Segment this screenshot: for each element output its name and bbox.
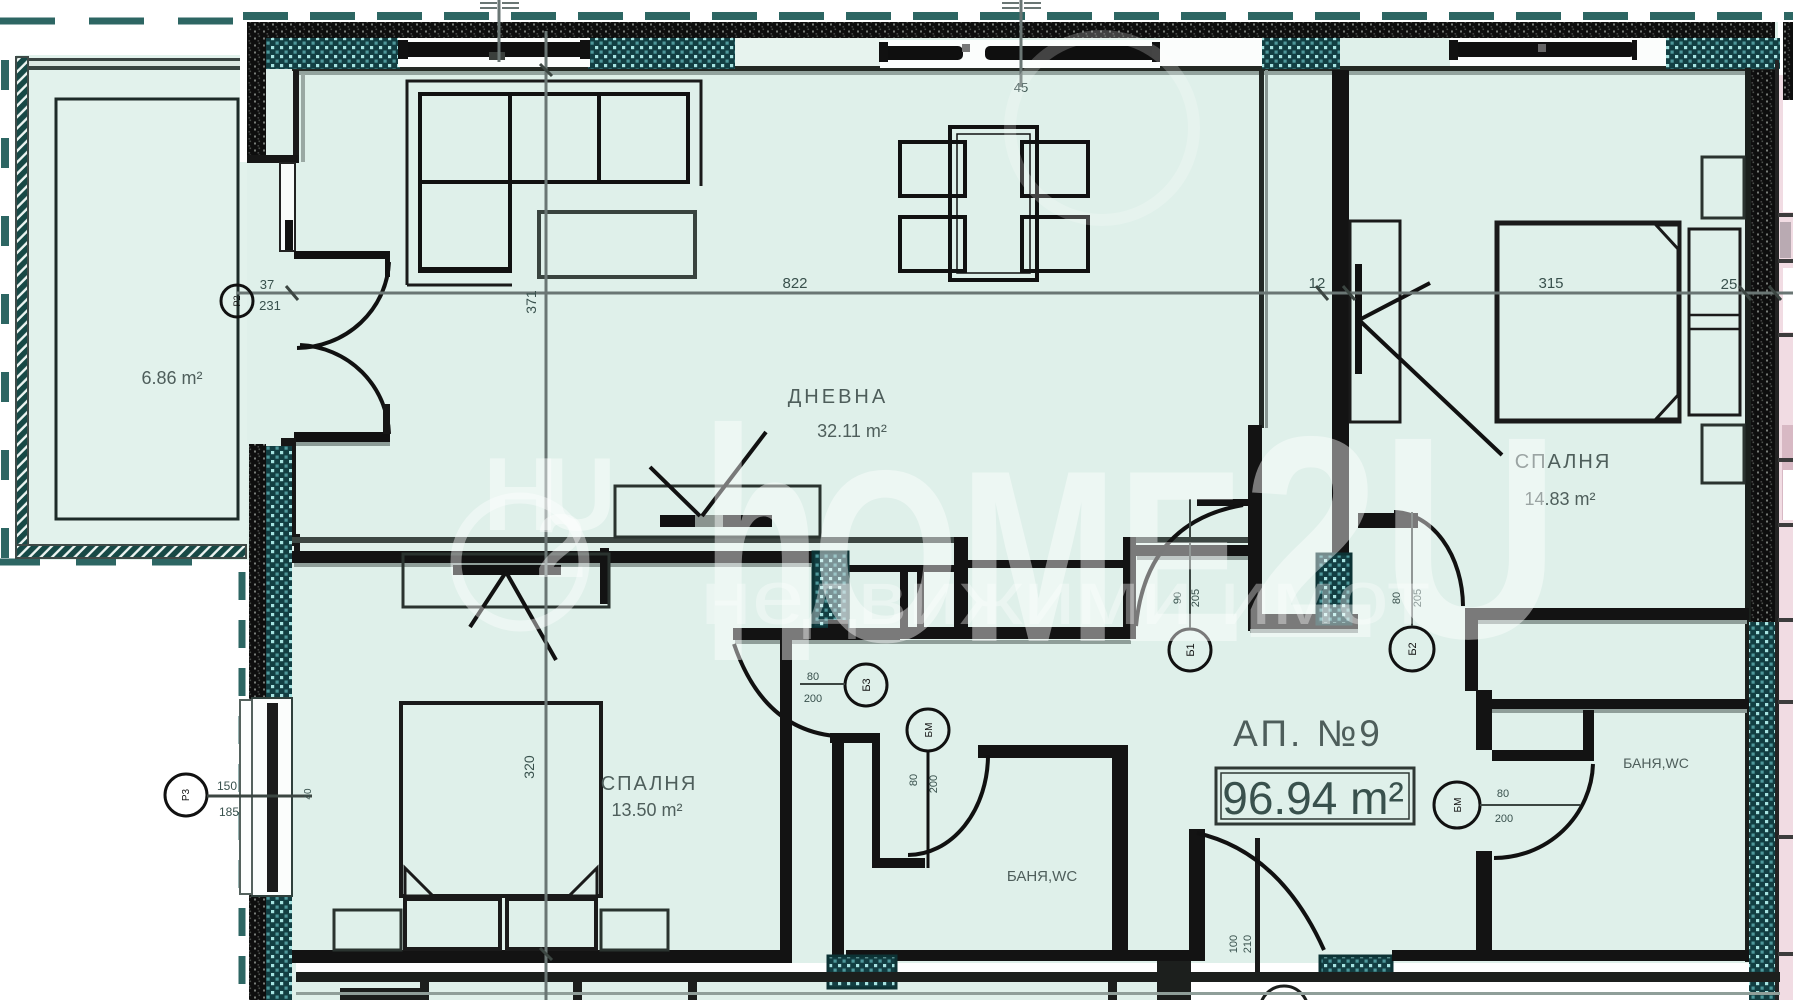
- svg-text:320: 320: [521, 755, 537, 779]
- svg-text:СПАЛНЯ: СПАЛНЯ: [601, 773, 698, 795]
- svg-text:6.86 m²: 6.86 m²: [141, 368, 202, 388]
- svg-text:315: 315: [1538, 275, 1563, 292]
- svg-text:БМ: БМ: [1453, 798, 1464, 813]
- svg-text:150: 150: [217, 779, 237, 793]
- svg-text:2U: 2U: [1242, 377, 1560, 699]
- svg-text:80: 80: [1497, 788, 1509, 800]
- svg-text:2: 2: [536, 497, 586, 597]
- svg-text:БАНЯ,WC: БАНЯ,WC: [1007, 868, 1078, 885]
- svg-text:185: 185: [219, 805, 239, 819]
- svg-text:80: 80: [908, 774, 920, 786]
- svg-text:Р3: Р3: [181, 788, 192, 801]
- svg-text:822: 822: [782, 275, 807, 292]
- svg-text:200: 200: [928, 775, 940, 793]
- svg-text:210: 210: [1242, 935, 1254, 953]
- svg-text:недвижими имот: недвижими имот: [700, 556, 1430, 641]
- svg-text:25: 25: [1721, 276, 1738, 293]
- svg-text:Р2: Р2: [232, 295, 242, 306]
- svg-text:96.94 m²: 96.94 m²: [1222, 772, 1404, 824]
- svg-text:37: 37: [260, 277, 274, 292]
- svg-text:231: 231: [259, 298, 281, 313]
- svg-text:АП. №9: АП. №9: [1233, 713, 1383, 754]
- svg-text:13.50 m²: 13.50 m²: [611, 800, 682, 820]
- svg-text:h: h: [701, 361, 821, 730]
- svg-text:БАНЯ,WC: БАНЯ,WC: [1623, 755, 1689, 771]
- svg-text:371: 371: [523, 290, 539, 314]
- svg-text:12: 12: [1309, 275, 1326, 292]
- svg-text:БМ: БМ: [924, 723, 935, 738]
- svg-text:200: 200: [1495, 813, 1513, 825]
- svg-text:40: 40: [303, 788, 314, 800]
- svg-text:100: 100: [1228, 935, 1240, 953]
